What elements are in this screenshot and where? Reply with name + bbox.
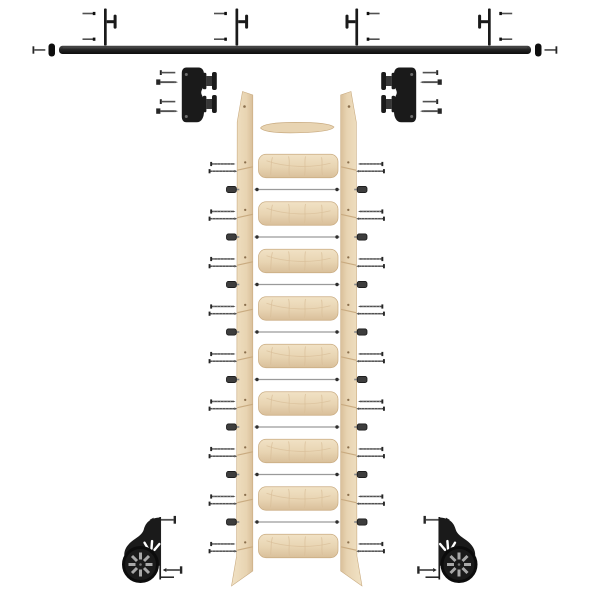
rail-highlight bbox=[63, 47, 527, 48]
ladder-tread bbox=[259, 534, 339, 558]
tie-rod-end-left bbox=[255, 473, 258, 476]
treads-group bbox=[259, 154, 339, 558]
tie-rod-end-right bbox=[335, 473, 338, 476]
ladder bbox=[209, 92, 385, 587]
tie-rod-end-left bbox=[255, 235, 258, 238]
rail-mounting-bracket bbox=[83, 9, 117, 46]
rail-mounting-bracket bbox=[214, 9, 248, 46]
ladder-kit-illustration bbox=[0, 0, 600, 600]
tread-screws-left bbox=[209, 542, 238, 553]
roller-carriage-left bbox=[156, 68, 217, 123]
ladder-tread bbox=[259, 439, 339, 463]
tread-screws-left bbox=[209, 162, 238, 173]
tie-rod-end-left bbox=[255, 283, 258, 286]
tread-screws-left bbox=[209, 352, 238, 363]
tie-rod-end-right bbox=[335, 235, 338, 238]
rail-mounting-bracket bbox=[346, 9, 380, 46]
ladder-tread bbox=[259, 487, 339, 511]
roller-carriage-right bbox=[381, 68, 442, 123]
tie-rod-end-right bbox=[335, 378, 338, 381]
tread-screws-left bbox=[209, 399, 238, 410]
tread-screws-right bbox=[356, 399, 385, 410]
tread-screws-right bbox=[356, 304, 385, 315]
ladder-top-step bbox=[261, 122, 335, 132]
floor-wheel-left bbox=[124, 516, 183, 582]
tread-screws-left bbox=[209, 494, 238, 505]
tread-screws-right bbox=[356, 352, 385, 363]
tie-rod-end-left bbox=[255, 425, 258, 428]
stile-hole-right bbox=[348, 105, 351, 108]
rail-mounting-bracket bbox=[478, 9, 512, 46]
tie-rod-end-right bbox=[335, 283, 338, 286]
tie-rod-end-left bbox=[255, 378, 258, 381]
tie-rod-end-left bbox=[255, 330, 258, 333]
rail-end-screw-right bbox=[545, 46, 558, 53]
rail-brackets bbox=[83, 9, 513, 46]
ladder-stile-right bbox=[341, 92, 362, 587]
tread-screws-right bbox=[356, 162, 385, 173]
rail-end-stop-left bbox=[49, 44, 56, 57]
tread-screws-right bbox=[356, 542, 385, 553]
product-image bbox=[0, 0, 600, 600]
tread-screws-left bbox=[209, 304, 238, 315]
tread-screws-right bbox=[356, 257, 385, 268]
ladder-tread bbox=[259, 392, 339, 416]
ladder-stile-left bbox=[232, 92, 253, 587]
ladder-tread bbox=[259, 154, 339, 178]
tie-rod-end-left bbox=[255, 520, 258, 523]
rail-end-stop-right bbox=[535, 44, 542, 57]
rail-end-screw-left bbox=[33, 46, 46, 53]
ladder-tread bbox=[259, 249, 339, 273]
tread-screws-left bbox=[209, 209, 238, 220]
floor-wheel-right bbox=[417, 516, 476, 582]
ladder-tread bbox=[259, 202, 339, 226]
tread-screws-left bbox=[209, 447, 238, 458]
stile-hole-left bbox=[243, 105, 246, 108]
tie-rod-end-right bbox=[335, 330, 338, 333]
tread-screws-right bbox=[356, 209, 385, 220]
tread-screws-right bbox=[356, 494, 385, 505]
tie-rod-end-left bbox=[255, 188, 258, 191]
tie-rod-end-right bbox=[335, 520, 338, 523]
tread-screws-left bbox=[209, 257, 238, 268]
rail-assembly bbox=[33, 9, 558, 57]
tread-screws-right bbox=[356, 447, 385, 458]
tie-rod-end-right bbox=[335, 188, 338, 191]
ladder-tread bbox=[259, 344, 339, 368]
tie-rod-end-right bbox=[335, 425, 338, 428]
ladder-tread bbox=[259, 297, 339, 321]
